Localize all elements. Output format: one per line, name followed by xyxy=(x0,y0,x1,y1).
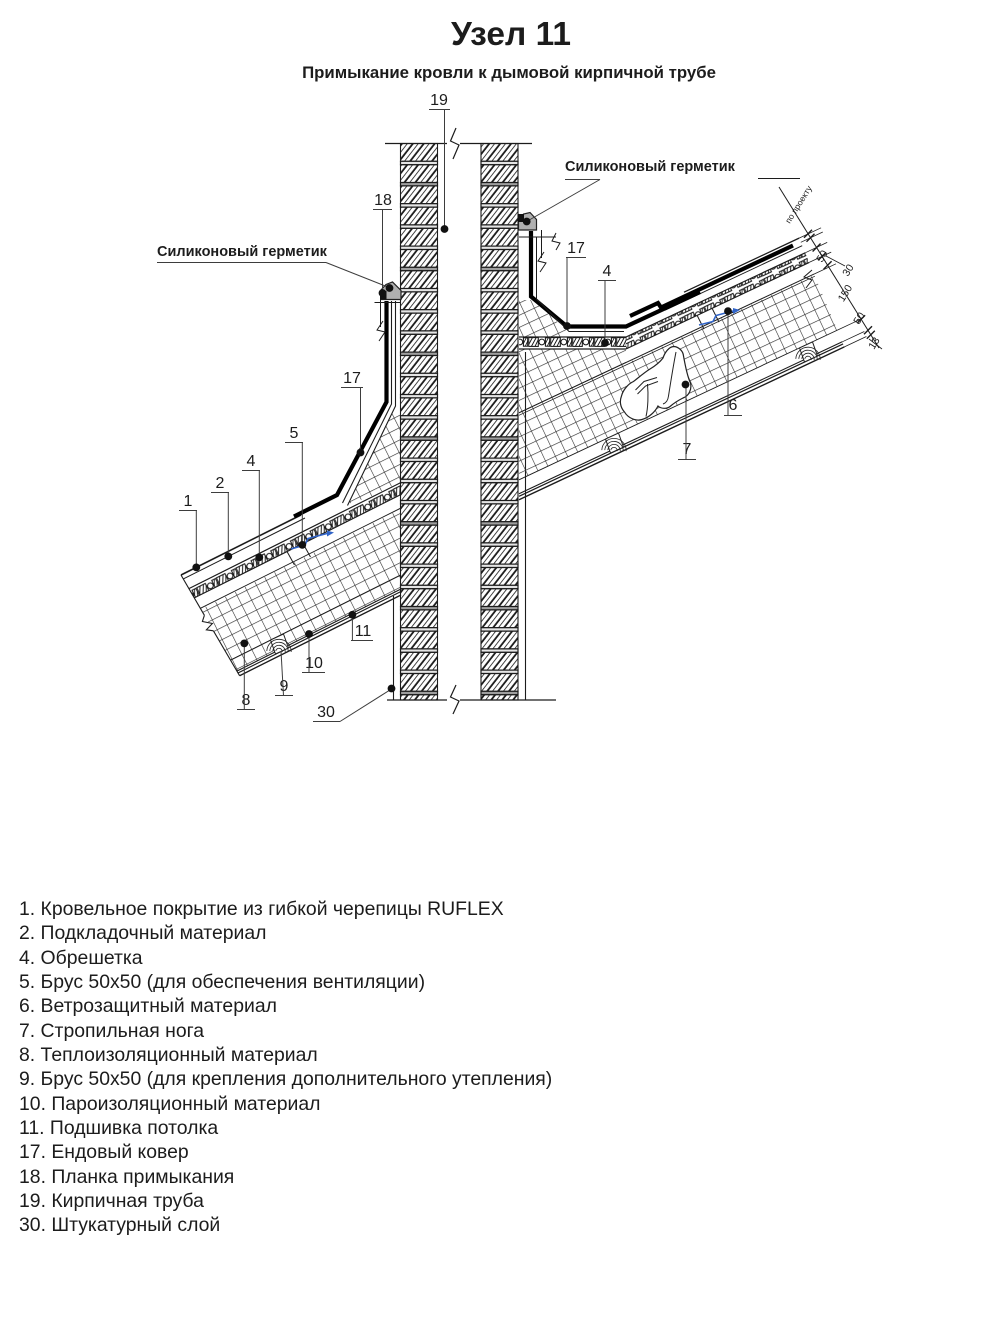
svg-text:17: 17 xyxy=(567,240,585,257)
svg-text:8: 8 xyxy=(242,692,251,709)
svg-text:10: 10 xyxy=(305,655,323,672)
svg-text:4: 4 xyxy=(247,453,256,470)
svg-text:11: 11 xyxy=(355,623,372,640)
svg-text:1: 1 xyxy=(184,493,193,510)
svg-text:6: 6 xyxy=(729,397,738,414)
svg-text:5: 5 xyxy=(290,425,299,442)
svg-text:17: 17 xyxy=(343,370,361,387)
svg-text:50: 50 xyxy=(851,310,867,326)
svg-text:30: 30 xyxy=(317,704,335,721)
svg-text:19: 19 xyxy=(430,92,448,109)
svg-text:4: 4 xyxy=(603,263,612,280)
svg-text:18: 18 xyxy=(374,192,392,209)
svg-text:9: 9 xyxy=(280,678,289,695)
svg-text:Силиконовый герметик: Силиконовый герметик xyxy=(157,244,328,260)
svg-text:50: 50 xyxy=(814,248,830,264)
svg-text:2: 2 xyxy=(216,475,225,492)
svg-text:7: 7 xyxy=(683,441,692,458)
svg-text:Силиконовый герметик: Силиконовый герметик xyxy=(565,159,736,175)
svg-text:150: 150 xyxy=(836,283,856,304)
